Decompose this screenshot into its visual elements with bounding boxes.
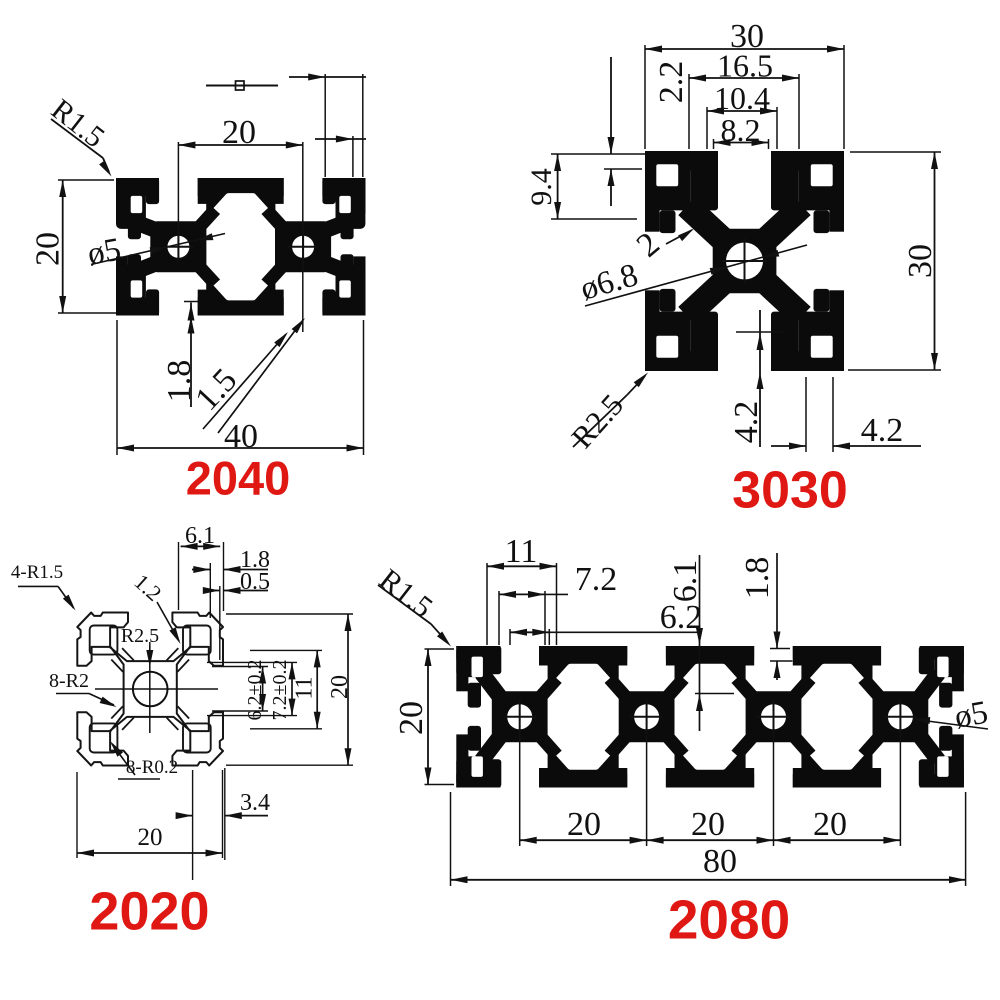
svg-text:4-R1.5: 4-R1.5 xyxy=(11,562,63,583)
svg-text:ø5: ø5 xyxy=(952,695,991,736)
svg-text:2020: 2020 xyxy=(89,882,209,942)
svg-text:20: 20 xyxy=(691,806,725,843)
svg-text:7.2: 7.2 xyxy=(575,561,618,598)
svg-text:20: 20 xyxy=(30,232,67,266)
svg-text:20: 20 xyxy=(327,675,353,699)
svg-text:9.4: 9.4 xyxy=(525,168,558,206)
svg-text:2.2: 2.2 xyxy=(653,61,690,104)
svg-text:20: 20 xyxy=(393,701,430,735)
svg-text:40: 40 xyxy=(224,418,258,455)
svg-text:6.2: 6.2 xyxy=(660,599,703,636)
svg-text:ø5: ø5 xyxy=(85,232,124,273)
svg-text:11: 11 xyxy=(505,533,538,570)
svg-text:6.1: 6.1 xyxy=(667,560,704,603)
svg-text:8-R2: 8-R2 xyxy=(49,670,89,692)
svg-text:80: 80 xyxy=(703,843,737,880)
svg-text:3030: 3030 xyxy=(732,462,848,520)
svg-text:20: 20 xyxy=(567,806,601,843)
svg-text:7.2±0.2: 7.2±0.2 xyxy=(269,660,291,721)
svg-text:1.8: 1.8 xyxy=(739,557,776,600)
svg-text:4.2: 4.2 xyxy=(861,412,904,449)
svg-text:2080: 2080 xyxy=(668,889,790,951)
svg-text:2040: 2040 xyxy=(186,452,291,505)
svg-text:8-R0.2: 8-R0.2 xyxy=(126,757,178,778)
svg-text:20: 20 xyxy=(138,824,163,851)
svg-text:3.4: 3.4 xyxy=(240,790,270,816)
svg-text:30: 30 xyxy=(902,244,939,278)
svg-text:11: 11 xyxy=(292,676,318,699)
svg-text:20: 20 xyxy=(813,806,847,843)
svg-text:R2.5: R2.5 xyxy=(121,625,159,647)
